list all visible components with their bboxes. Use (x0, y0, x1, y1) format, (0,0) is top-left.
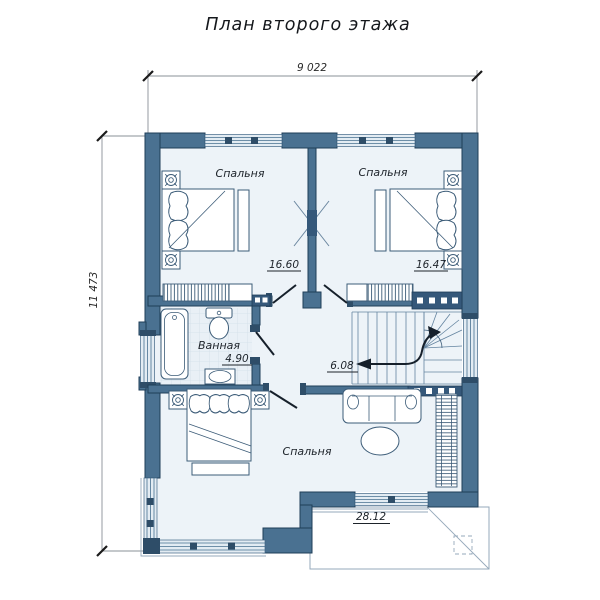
window-top-right (337, 135, 415, 147)
nightstand-lamp (169, 391, 187, 409)
label-bedroom-bottom-name: Спальня (283, 445, 332, 458)
dresser-top-right (347, 284, 367, 301)
bathtub (161, 309, 188, 379)
nightstand-lamp (251, 391, 269, 409)
dimension-left-label: 11 473 (88, 272, 100, 309)
window-stairs-right (462, 313, 478, 383)
cabinet-band-top-right (412, 292, 462, 309)
label-bedroom-top-left-area: 16.60 (269, 259, 299, 271)
coffee-table (361, 427, 399, 455)
label-bedroom-top-right-area: 16.47 (416, 259, 446, 271)
floor-plan-page: План второго этажа 9 022 11 473 (0, 0, 600, 600)
label-bathroom-name: Ванная (198, 339, 240, 352)
label-bedroom-bottom-area: 28.12 (356, 511, 386, 523)
pillow (228, 395, 249, 413)
label-hall-area: 6.08 (330, 360, 354, 372)
label-bathroom-area: 4.90 (225, 353, 249, 365)
wardrobe-hatch-top-right (367, 284, 413, 301)
nightstand-lamp (162, 171, 180, 189)
nightstand-lamp (444, 171, 462, 189)
window-top-left (205, 135, 282, 147)
page-title: План второго этажа (205, 15, 411, 35)
label-bedroom-top-left-name: Спальня (216, 167, 265, 180)
bed-bench (192, 463, 249, 475)
bed-bench (238, 190, 249, 251)
floor-plan-drawing: План второго этажа 9 022 11 473 (0, 0, 600, 600)
nightstand-lamp (444, 251, 462, 269)
dresser-top-left (229, 284, 252, 301)
window-bottom-right (355, 494, 428, 506)
sofa (343, 389, 421, 423)
roof-outline (310, 507, 489, 569)
nightstand-lamp (162, 251, 180, 269)
window-bathroom-left (140, 330, 156, 388)
wardrobe-ladder-right (436, 394, 457, 487)
cabinet-band-top-left (252, 295, 270, 306)
wardrobe-hatch-top-left (163, 284, 229, 301)
pillow (437, 191, 456, 221)
bed-bench (375, 190, 386, 251)
dimension-top-label: 9 022 (297, 62, 327, 74)
pillow (437, 220, 456, 250)
pillow (209, 395, 230, 413)
label-bedroom-top-right-name: Спальня (359, 166, 408, 179)
pillow (189, 395, 210, 413)
pillow (169, 191, 188, 221)
sink (205, 369, 235, 384)
